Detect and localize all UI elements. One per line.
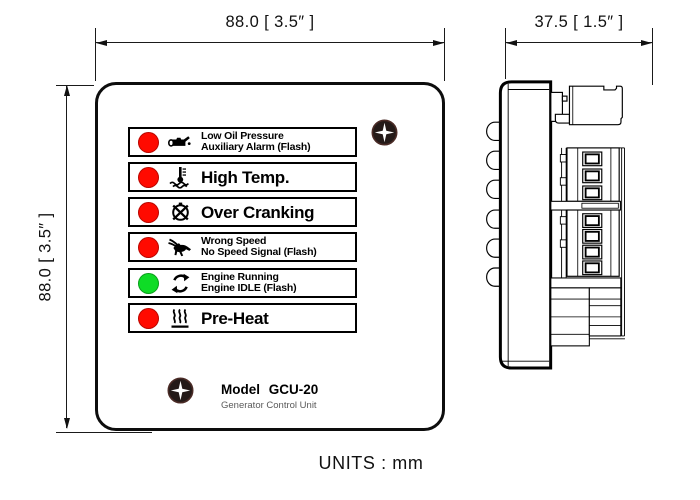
led-green bbox=[138, 273, 159, 294]
arrowhead bbox=[433, 40, 444, 46]
dimension-line bbox=[96, 42, 444, 43]
side-depth-dimension: 37.5 [ 1.5″ ] bbox=[500, 13, 658, 32]
indicator-label: No Speed Signal (Flash) bbox=[201, 247, 317, 259]
extension-line bbox=[56, 85, 94, 86]
extension-line bbox=[95, 28, 96, 81]
model-block: Model GCU-20 Generator Control Unit bbox=[221, 382, 318, 411]
indicator-low-oil-pressure: Low Oil Pressure Auxiliary Alarm (Flash) bbox=[128, 127, 357, 157]
screw-icon bbox=[167, 377, 194, 404]
dimension-line bbox=[506, 42, 652, 43]
indicator-high-temp: High Temp. bbox=[128, 162, 357, 192]
extension-line bbox=[444, 28, 445, 81]
indicator-engine-running: Engine Running Engine IDLE (Flash) bbox=[128, 268, 357, 298]
indicator-label: High Temp. bbox=[201, 169, 289, 186]
indicator-label: Over Cranking bbox=[201, 204, 314, 221]
led-red bbox=[138, 308, 159, 329]
led-red bbox=[138, 202, 159, 223]
over-cranking-icon bbox=[165, 200, 195, 225]
dimension-drawing: 88.0 [ 3.5″ ] 37.5 [ 1.5″ ] 88.0 [ 3.5″ … bbox=[0, 0, 700, 500]
indicator-label: Auxiliary Alarm (Flash) bbox=[201, 142, 310, 154]
indicator-label: Engine IDLE (Flash) bbox=[201, 283, 296, 295]
front-height-dimension: 88.0 [ 3.5″ ] bbox=[37, 212, 56, 301]
screw-icon bbox=[371, 119, 398, 146]
terminal-block-lower bbox=[567, 210, 619, 276]
terminal-rail bbox=[560, 148, 566, 299]
led-red bbox=[138, 237, 159, 258]
indicator-pre-heat: Pre-Heat bbox=[128, 303, 357, 333]
indicator-label: Pre-Heat bbox=[201, 310, 269, 327]
led-red bbox=[138, 167, 159, 188]
arrowhead bbox=[506, 40, 517, 46]
arrowhead bbox=[641, 40, 652, 46]
indicator-over-cranking: Over Cranking bbox=[128, 197, 357, 227]
led-bumps bbox=[487, 122, 501, 286]
model-subtitle: Generator Control Unit bbox=[221, 400, 318, 411]
model-label: Model GCU-20 bbox=[221, 382, 318, 397]
extension-line bbox=[56, 432, 152, 433]
side-view bbox=[480, 75, 660, 437]
arrowhead bbox=[64, 85, 70, 96]
low-oil-pressure-icon bbox=[165, 130, 195, 155]
led-red bbox=[138, 132, 159, 153]
front-panel: Low Oil Pressure Auxiliary Alarm (Flash) bbox=[95, 82, 445, 431]
bottom-connector bbox=[551, 278, 625, 346]
high-temp-icon bbox=[165, 165, 195, 190]
dimension-line bbox=[66, 86, 67, 428]
pre-heat-icon bbox=[165, 306, 195, 331]
extension-line bbox=[505, 28, 506, 79]
relay-housing bbox=[551, 86, 622, 125]
engine-running-icon bbox=[165, 271, 195, 296]
front-width-dimension: 88.0 [ 3.5″ ] bbox=[95, 13, 445, 32]
arrowhead bbox=[64, 418, 70, 429]
arrowhead bbox=[96, 40, 107, 46]
indicator-wrong-speed: Wrong Speed No Speed Signal (Flash) bbox=[128, 232, 357, 262]
terminal-block-upper bbox=[567, 148, 619, 201]
units-label: UNITS : mm bbox=[271, 453, 471, 474]
wrong-speed-icon bbox=[165, 235, 195, 260]
